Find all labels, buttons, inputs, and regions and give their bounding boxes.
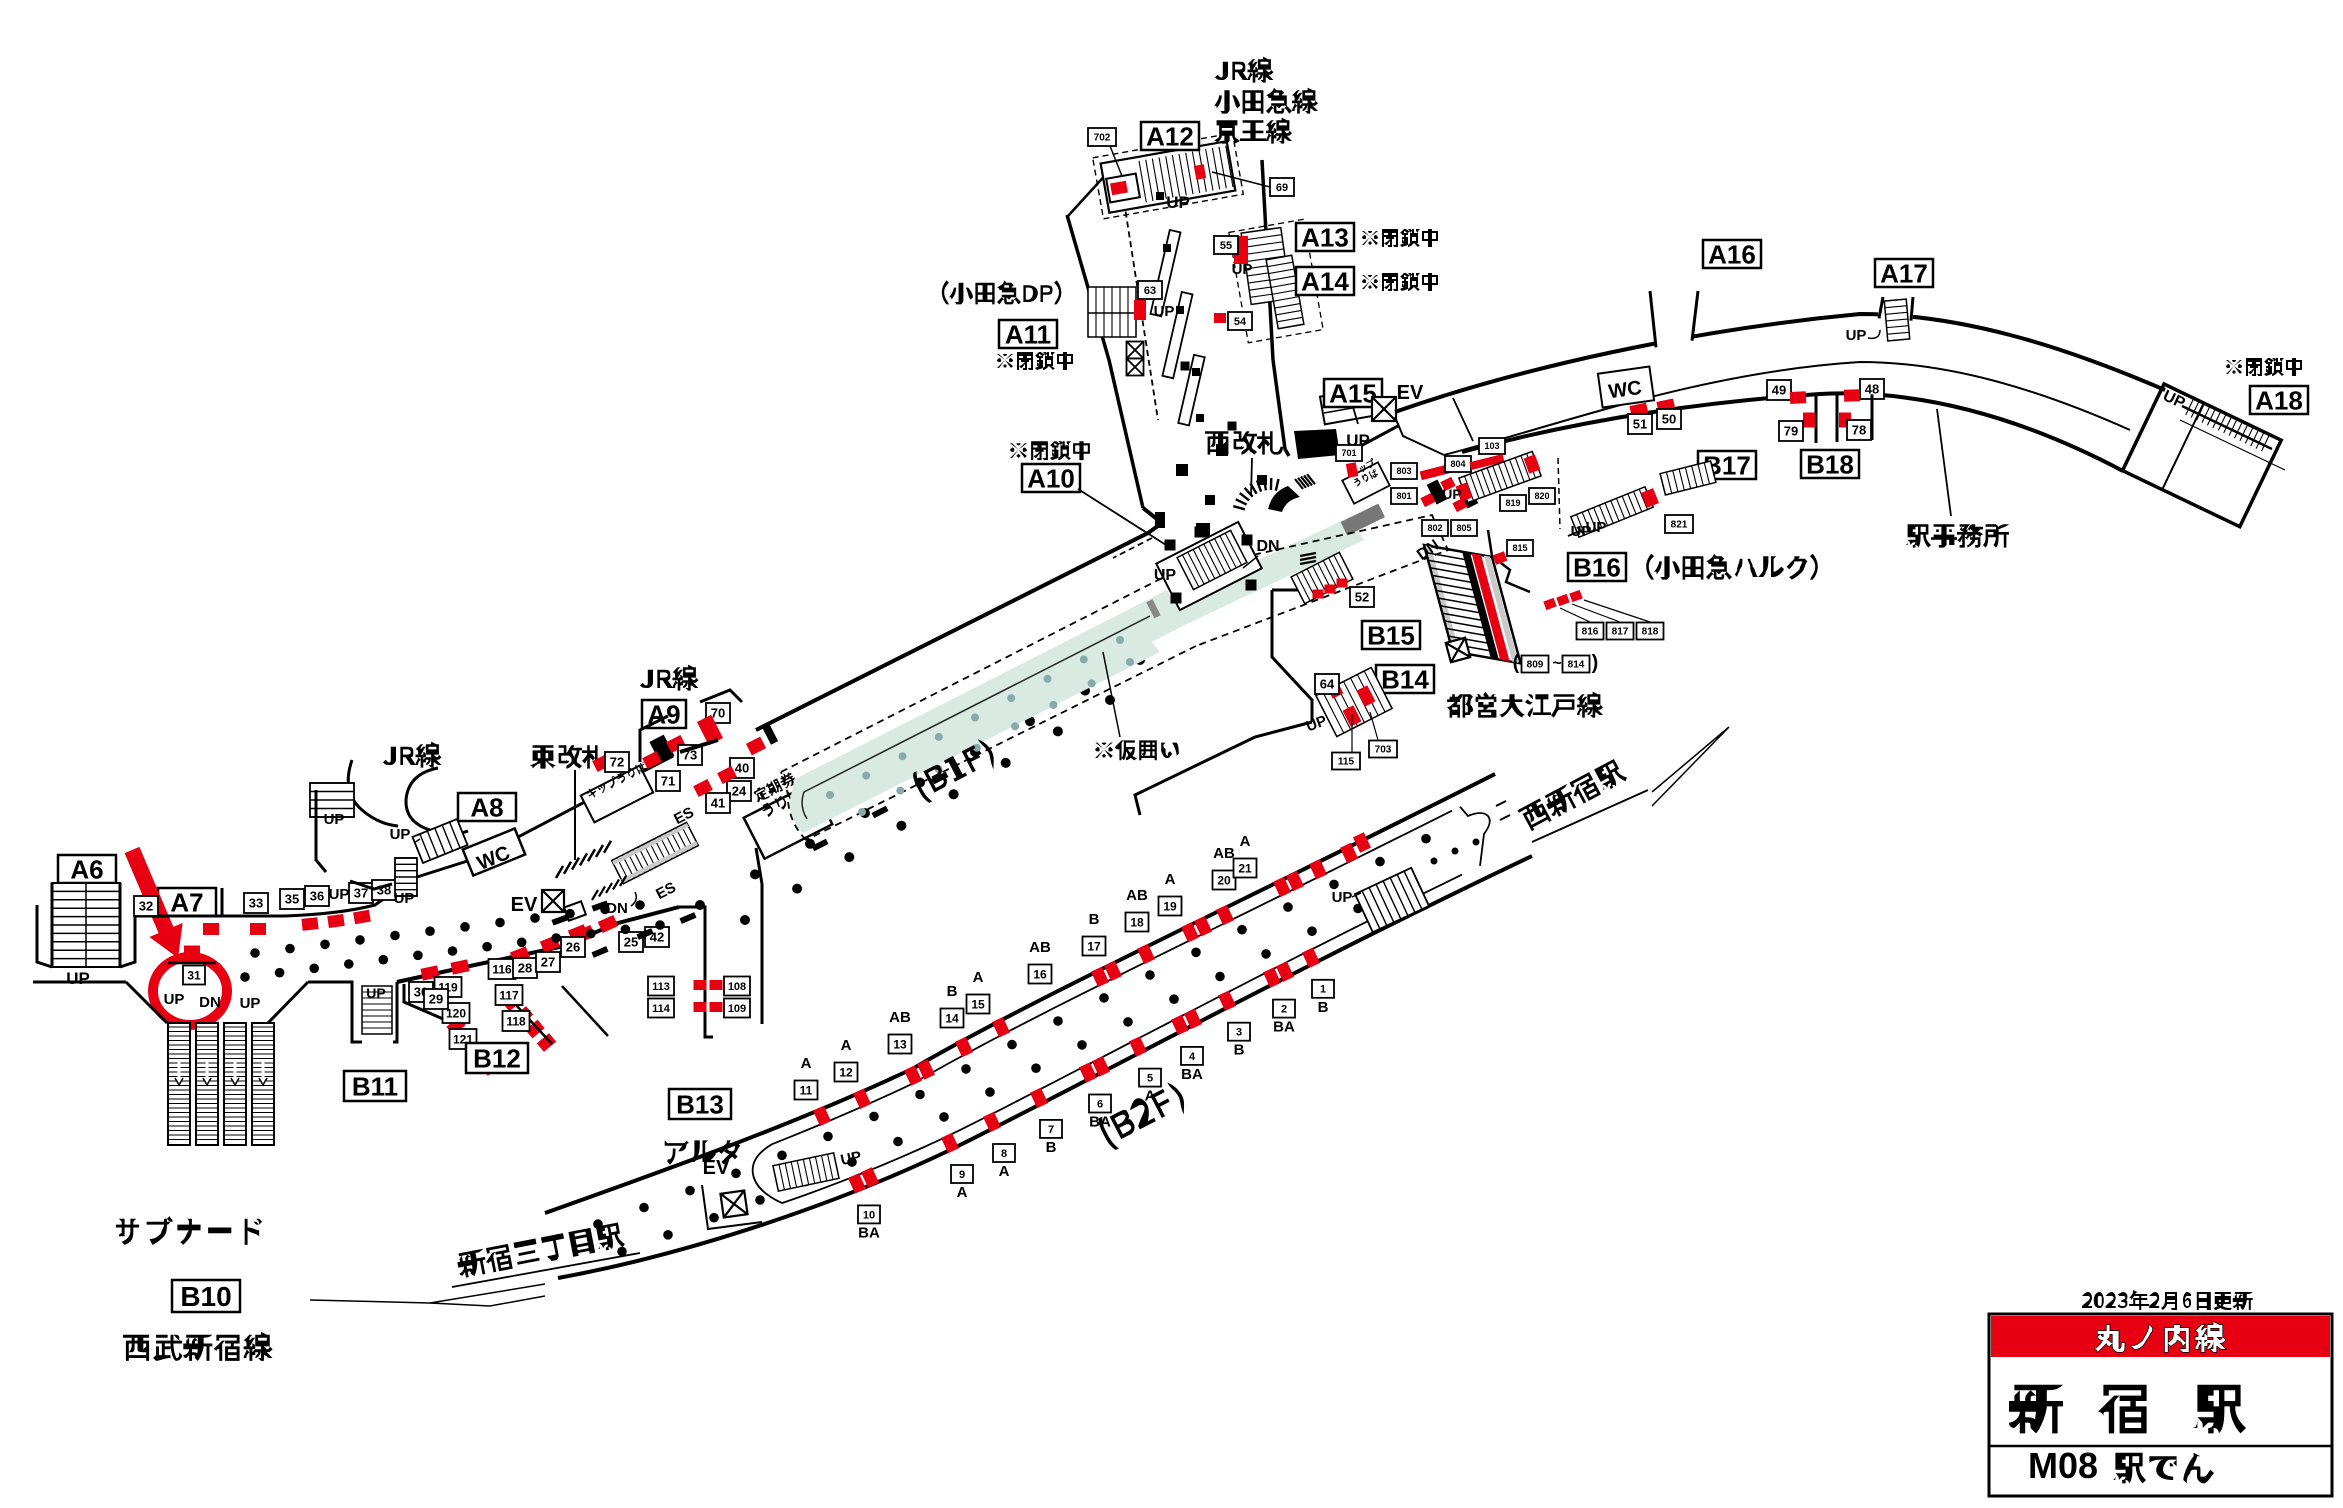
svg-text:64: 64	[1320, 677, 1335, 692]
svg-text:113: 113	[652, 981, 670, 993]
svg-text:A: A	[973, 969, 984, 986]
svg-text:55: 55	[1220, 240, 1232, 252]
svg-text:3: 3	[1236, 1027, 1242, 1039]
svg-text:B: B	[1046, 1139, 1057, 1156]
svg-text:A17: A17	[1880, 258, 1928, 288]
svg-text:B18: B18	[1806, 449, 1854, 479]
svg-text:24: 24	[732, 784, 747, 799]
svg-text:4: 4	[1189, 1051, 1196, 1063]
svg-text:816: 816	[1582, 627, 1599, 638]
svg-text:52: 52	[1355, 590, 1369, 605]
svg-text:12: 12	[839, 1065, 853, 1079]
svg-text:21: 21	[1238, 861, 1252, 875]
svg-text:804: 804	[1450, 459, 1465, 469]
svg-text:25: 25	[624, 935, 638, 950]
svg-text:109: 109	[728, 1003, 746, 1015]
svg-text:821: 821	[1671, 520, 1688, 531]
svg-text:UP: UP	[1154, 303, 1175, 320]
svg-text:A10: A10	[1027, 463, 1075, 493]
svg-text:809: 809	[1527, 660, 1544, 671]
svg-text:120: 120	[446, 1006, 466, 1020]
svg-text:14: 14	[945, 1011, 959, 1025]
svg-text:UP: UP	[1332, 889, 1353, 906]
svg-text:114: 114	[652, 1003, 671, 1015]
svg-text:AB: AB	[1213, 845, 1235, 862]
svg-text:51: 51	[1633, 417, 1647, 432]
svg-text:UP: UP	[329, 886, 350, 903]
svg-text:UP: UP	[1586, 519, 1607, 536]
svg-text:819: 819	[1505, 498, 1520, 508]
svg-text:A: A	[1165, 871, 1176, 888]
svg-text:A: A	[1240, 833, 1251, 850]
svg-text:B16: B16	[1573, 552, 1621, 582]
svg-text:UP: UP	[366, 985, 385, 1001]
svg-text:78: 78	[1852, 423, 1866, 438]
svg-text:11: 11	[800, 1083, 813, 1097]
svg-text:A15: A15	[1329, 378, 1377, 408]
svg-text:AB: AB	[1029, 939, 1051, 956]
svg-text:~: ~	[1552, 655, 1561, 672]
svg-text:A16: A16	[1708, 239, 1756, 269]
svg-text:B13: B13	[676, 1089, 724, 1119]
svg-text:B15: B15	[1367, 620, 1415, 650]
svg-text:B14: B14	[1381, 664, 1429, 694]
svg-text:820: 820	[1534, 491, 1549, 501]
svg-text:9: 9	[959, 1169, 965, 1181]
svg-text:B: B	[1234, 1042, 1245, 1059]
svg-text:79: 79	[1784, 424, 1798, 439]
svg-text:37: 37	[354, 886, 368, 901]
svg-text:DN: DN	[1256, 538, 1279, 555]
svg-text:1: 1	[1320, 984, 1326, 996]
svg-text:33: 33	[249, 896, 263, 911]
svg-text:UP: UP	[66, 969, 90, 988]
svg-text:A: A	[841, 1037, 852, 1054]
svg-text:EV: EV	[1397, 382, 1424, 404]
svg-text:WC: WC	[1607, 377, 1643, 403]
svg-text:M08: M08	[2028, 1445, 2098, 1486]
svg-text:6: 6	[1097, 1099, 1103, 1111]
svg-text:UP: UP	[1442, 486, 1461, 502]
svg-text:69: 69	[1276, 182, 1288, 194]
svg-text:17: 17	[1087, 939, 1101, 953]
svg-text:B: B	[1089, 911, 1100, 928]
svg-text:B12: B12	[473, 1043, 521, 1073]
svg-text:108: 108	[728, 981, 746, 993]
svg-text:A14: A14	[1301, 266, 1349, 296]
svg-text:AB: AB	[1126, 887, 1148, 904]
svg-text:10: 10	[863, 1209, 875, 1221]
svg-text:B11: B11	[352, 1071, 398, 1101]
svg-text:118: 118	[506, 1014, 526, 1028]
svg-text:AB: AB	[889, 1009, 911, 1026]
svg-text:20: 20	[1217, 873, 1231, 887]
svg-text:UP: UP	[1846, 327, 1867, 344]
svg-text:117: 117	[499, 988, 519, 1002]
svg-text:A: A	[957, 1184, 968, 1201]
svg-text:UP: UP	[394, 890, 415, 907]
svg-text:103: 103	[1484, 441, 1499, 451]
svg-text:8: 8	[1001, 1148, 1007, 1160]
svg-text:49: 49	[1772, 383, 1786, 398]
svg-text:A12: A12	[1146, 121, 1194, 151]
svg-text:5: 5	[1147, 1073, 1153, 1085]
svg-text:19: 19	[1163, 899, 1177, 913]
svg-text:B: B	[947, 983, 958, 1000]
svg-text:29: 29	[429, 992, 443, 1007]
svg-text:31: 31	[187, 968, 201, 982]
svg-text:BA: BA	[1181, 1066, 1203, 1083]
svg-text:DN: DN	[199, 994, 221, 1011]
svg-text:16: 16	[1033, 967, 1047, 981]
svg-text:803: 803	[1396, 466, 1411, 476]
svg-text:701: 701	[1341, 448, 1356, 458]
svg-text:815: 815	[1512, 543, 1527, 553]
svg-text:703: 703	[1375, 745, 1392, 756]
svg-text:BA: BA	[858, 1224, 880, 1241]
svg-text:802: 802	[1427, 523, 1442, 533]
svg-text:BA: BA	[1273, 1019, 1295, 1036]
svg-text:35: 35	[285, 892, 299, 907]
svg-text:71: 71	[661, 774, 675, 789]
svg-text:41: 41	[711, 796, 725, 811]
svg-text:32: 32	[139, 899, 153, 914]
svg-text:702: 702	[1094, 133, 1111, 144]
svg-text:B: B	[1318, 999, 1329, 1016]
svg-text:UP: UP	[390, 826, 411, 843]
svg-text:A8: A8	[470, 792, 503, 822]
svg-text:7: 7	[1048, 1124, 1054, 1136]
svg-text:EV: EV	[703, 1157, 730, 1179]
svg-text:A18: A18	[2255, 385, 2303, 415]
svg-text:A: A	[999, 1163, 1010, 1180]
svg-text:36: 36	[310, 889, 324, 904]
svg-text:A6: A6	[70, 854, 103, 884]
svg-text:UP: UP	[240, 995, 261, 1012]
svg-text:817: 817	[1612, 627, 1629, 638]
svg-text:15: 15	[971, 997, 985, 1011]
svg-text:818: 818	[1642, 627, 1659, 638]
svg-text:63: 63	[1144, 285, 1156, 297]
svg-text:B10: B10	[180, 1281, 231, 1312]
svg-text:50: 50	[1662, 412, 1676, 427]
svg-text:115: 115	[1338, 757, 1355, 768]
svg-text:2: 2	[1281, 1004, 1287, 1016]
svg-text:A13: A13	[1301, 222, 1349, 252]
svg-text:UP: UP	[1154, 567, 1177, 584]
svg-text:27: 27	[541, 955, 555, 970]
svg-text:116: 116	[492, 962, 512, 976]
svg-text:UP: UP	[324, 811, 345, 828]
svg-text:40: 40	[735, 761, 749, 776]
svg-text:A: A	[801, 1055, 812, 1072]
svg-text:805: 805	[1456, 523, 1471, 533]
svg-text:A11: A11	[1005, 319, 1051, 349]
svg-text:72: 72	[610, 755, 624, 770]
svg-text:814: 814	[1568, 660, 1585, 671]
svg-text:UP: UP	[164, 991, 185, 1008]
svg-text:801: 801	[1396, 491, 1411, 501]
svg-text:28: 28	[518, 961, 532, 976]
svg-text:UP: UP	[1232, 261, 1253, 278]
svg-text:): )	[1592, 652, 1599, 674]
svg-text:26: 26	[566, 940, 580, 955]
svg-text:UP: UP	[1166, 193, 1190, 212]
svg-text:54: 54	[1234, 316, 1247, 328]
svg-text:EV: EV	[511, 894, 538, 916]
svg-text:13: 13	[893, 1037, 907, 1051]
svg-text:A7: A7	[170, 887, 203, 917]
svg-text:18: 18	[1130, 915, 1144, 929]
svg-text:(: (	[1513, 652, 1520, 674]
